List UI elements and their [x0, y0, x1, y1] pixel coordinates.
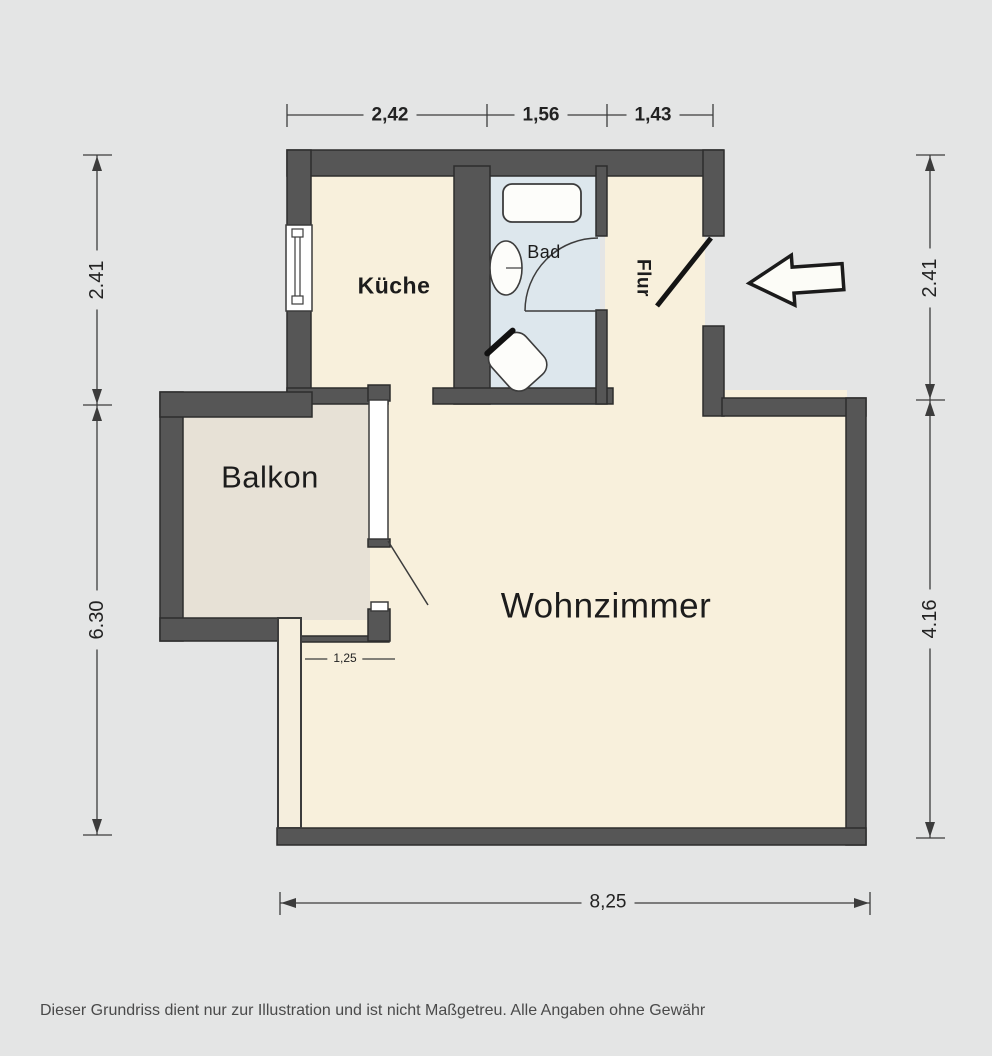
- dim-label-right-2: 4.16: [918, 590, 942, 649]
- window-icon: [286, 225, 312, 311]
- wall-kitchen-left-lower: [287, 309, 311, 393]
- bathtub-icon: [503, 184, 581, 222]
- flur-floor: [605, 165, 705, 410]
- room-label-kueche: Küche: [358, 275, 431, 298]
- wall-flur-right-lower: [703, 326, 724, 416]
- wall-kitchen-bath: [454, 166, 490, 404]
- floorplan-canvas: Küche Bad Flur Balkon Wohnzimmer 2,42 1,…: [0, 0, 992, 1056]
- wall-balcony-door-mid: [368, 539, 390, 547]
- room-label-bad: Bad: [527, 243, 561, 261]
- balcony-door-end: [371, 602, 388, 611]
- wall-balcony-left: [160, 392, 183, 641]
- wall-balcony-bottom: [160, 618, 281, 641]
- wall-bottom: [277, 828, 866, 845]
- room-label-flur: Flur: [634, 259, 653, 297]
- wall-step-top: [722, 398, 866, 416]
- balkon-floor: [183, 400, 370, 620]
- wall-flur-right-upper: [703, 150, 724, 236]
- wall-light-lower-left: [278, 618, 301, 828]
- dim-label-top-3: 1,43: [627, 105, 680, 126]
- window-glass: [295, 233, 300, 303]
- dim-label-top-2: 1,56: [515, 105, 568, 126]
- wall-balcony-door-top: [368, 385, 390, 401]
- dim-label-left-2: 6.30: [85, 591, 109, 650]
- balcony-door-leaf: [369, 400, 388, 539]
- dim-label-left-1: 2.41: [85, 251, 109, 310]
- wall-balcony-top: [160, 392, 312, 417]
- room-label-wohnzimmer: Wohnzimmer: [501, 589, 712, 624]
- window-cap-top: [292, 229, 303, 237]
- room-label-balkon: Balkon: [221, 462, 319, 493]
- window-cap-bottom: [292, 296, 303, 304]
- dim-label-bottom: 8,25: [582, 892, 635, 913]
- wall-bath-right-lower: [596, 310, 607, 404]
- floorplan-drawing: [0, 0, 992, 1056]
- wall-balcony-door-bottom: [368, 609, 390, 641]
- disclaimer-text: Dieser Grundriss dient nur zur Illustrat…: [40, 1002, 705, 1020]
- wall-bath-right-upper: [596, 166, 607, 236]
- dim-label-inner: 1,25: [327, 652, 362, 664]
- dim-label-top-1: 2,42: [364, 105, 417, 126]
- wall-kitchen-left-upper: [287, 150, 311, 227]
- entrance-arrow-icon: [747, 252, 844, 308]
- wall-top: [287, 150, 723, 176]
- dim-label-right-1: 2.41: [918, 249, 942, 308]
- wall-right-outer: [846, 398, 866, 845]
